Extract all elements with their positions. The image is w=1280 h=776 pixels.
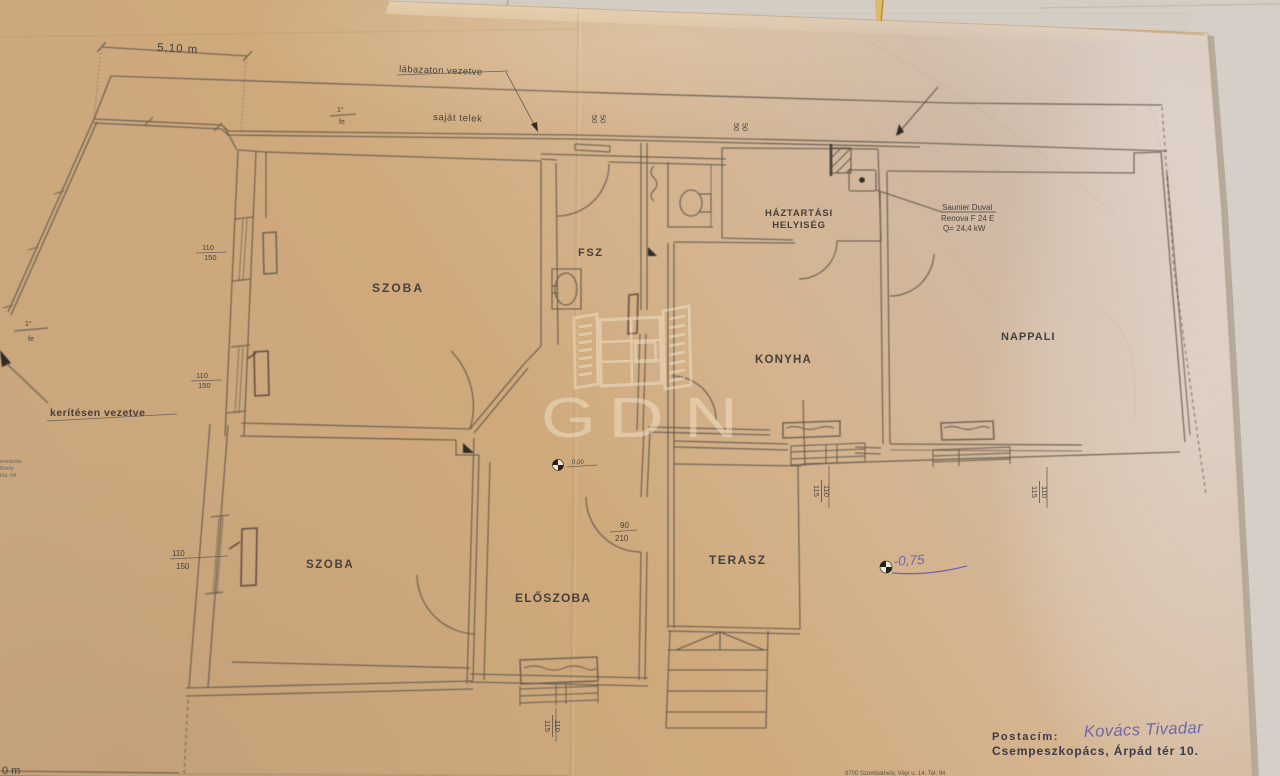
svg-text:D: D <box>608 386 664 450</box>
svg-text:8700 Szombathely, Vépi u. 14.: 8700 Szombathely, Vépi u. 14. Tel: 94 <box>845 771 946 776</box>
svg-text:enzációs: enzációs <box>0 459 22 465</box>
svg-text:110: 110 <box>196 371 208 380</box>
svg-text:HELYISÉG: HELYISÉG <box>772 220 826 231</box>
svg-text:1°: 1° <box>25 320 32 328</box>
svg-text:fe: fe <box>28 336 34 343</box>
svg-text:50: 50 <box>590 115 599 123</box>
svg-text:0,00: 0,00 <box>572 460 584 466</box>
svg-text:SZOBA: SZOBA <box>372 281 424 295</box>
svg-text:115: 115 <box>812 485 821 497</box>
svg-text:Q= 24,4 kW: Q= 24,4 kW <box>943 224 986 233</box>
svg-text:110: 110 <box>172 549 185 558</box>
svg-text:saját telek: saját telek <box>433 112 483 125</box>
svg-text:115: 115 <box>543 720 552 732</box>
svg-text:110: 110 <box>822 485 831 497</box>
svg-text:150: 150 <box>198 381 211 390</box>
svg-text:ELŐSZOBA: ELŐSZOBA <box>515 590 591 605</box>
svg-text:KONYHA: KONYHA <box>755 354 812 366</box>
svg-text:G: G <box>541 386 596 450</box>
svg-text:90: 90 <box>620 521 629 530</box>
svg-text:150: 150 <box>176 562 190 571</box>
svg-text:50: 50 <box>732 123 741 131</box>
svg-text:NAPPALI: NAPPALI <box>1001 331 1055 343</box>
svg-text:fe: fe <box>339 119 345 126</box>
svg-text:150: 150 <box>204 253 217 262</box>
svg-text:-0,75: -0,75 <box>893 552 925 569</box>
svg-text:Saunier Duval: Saunier Duval <box>942 203 992 212</box>
svg-text:TERASZ: TERASZ <box>709 553 767 567</box>
svg-text:Postacím:: Postacím: <box>992 731 1059 743</box>
svg-text:Csempeszkopács, Árpád tér 10.: Csempeszkopács, Árpád tér 10. <box>992 743 1199 758</box>
svg-text:115: 115 <box>1030 486 1039 498</box>
svg-text:1°: 1° <box>337 106 344 114</box>
svg-text:Rd. 04: Rd. 04 <box>0 473 16 479</box>
svg-text:Renova F 24 E: Renova F 24 E <box>941 214 994 223</box>
svg-text:210: 210 <box>615 534 629 543</box>
svg-text:110: 110 <box>553 720 562 732</box>
svg-text:0 m: 0 m <box>2 765 20 776</box>
svg-text:110: 110 <box>202 243 214 252</box>
svg-text:Bhely: Bhely <box>0 466 14 472</box>
svg-text:FSZ: FSZ <box>578 247 604 259</box>
svg-text:SZOBA: SZOBA <box>306 559 354 571</box>
svg-text:N: N <box>684 386 738 450</box>
svg-text:5,10 m: 5,10 m <box>157 42 199 56</box>
svg-text:HÁZTARTÁSI: HÁZTARTÁSI <box>765 208 833 219</box>
svg-text:110: 110 <box>1040 486 1049 498</box>
svg-text:kerítésen vezetve: kerítésen vezetve <box>50 407 145 419</box>
